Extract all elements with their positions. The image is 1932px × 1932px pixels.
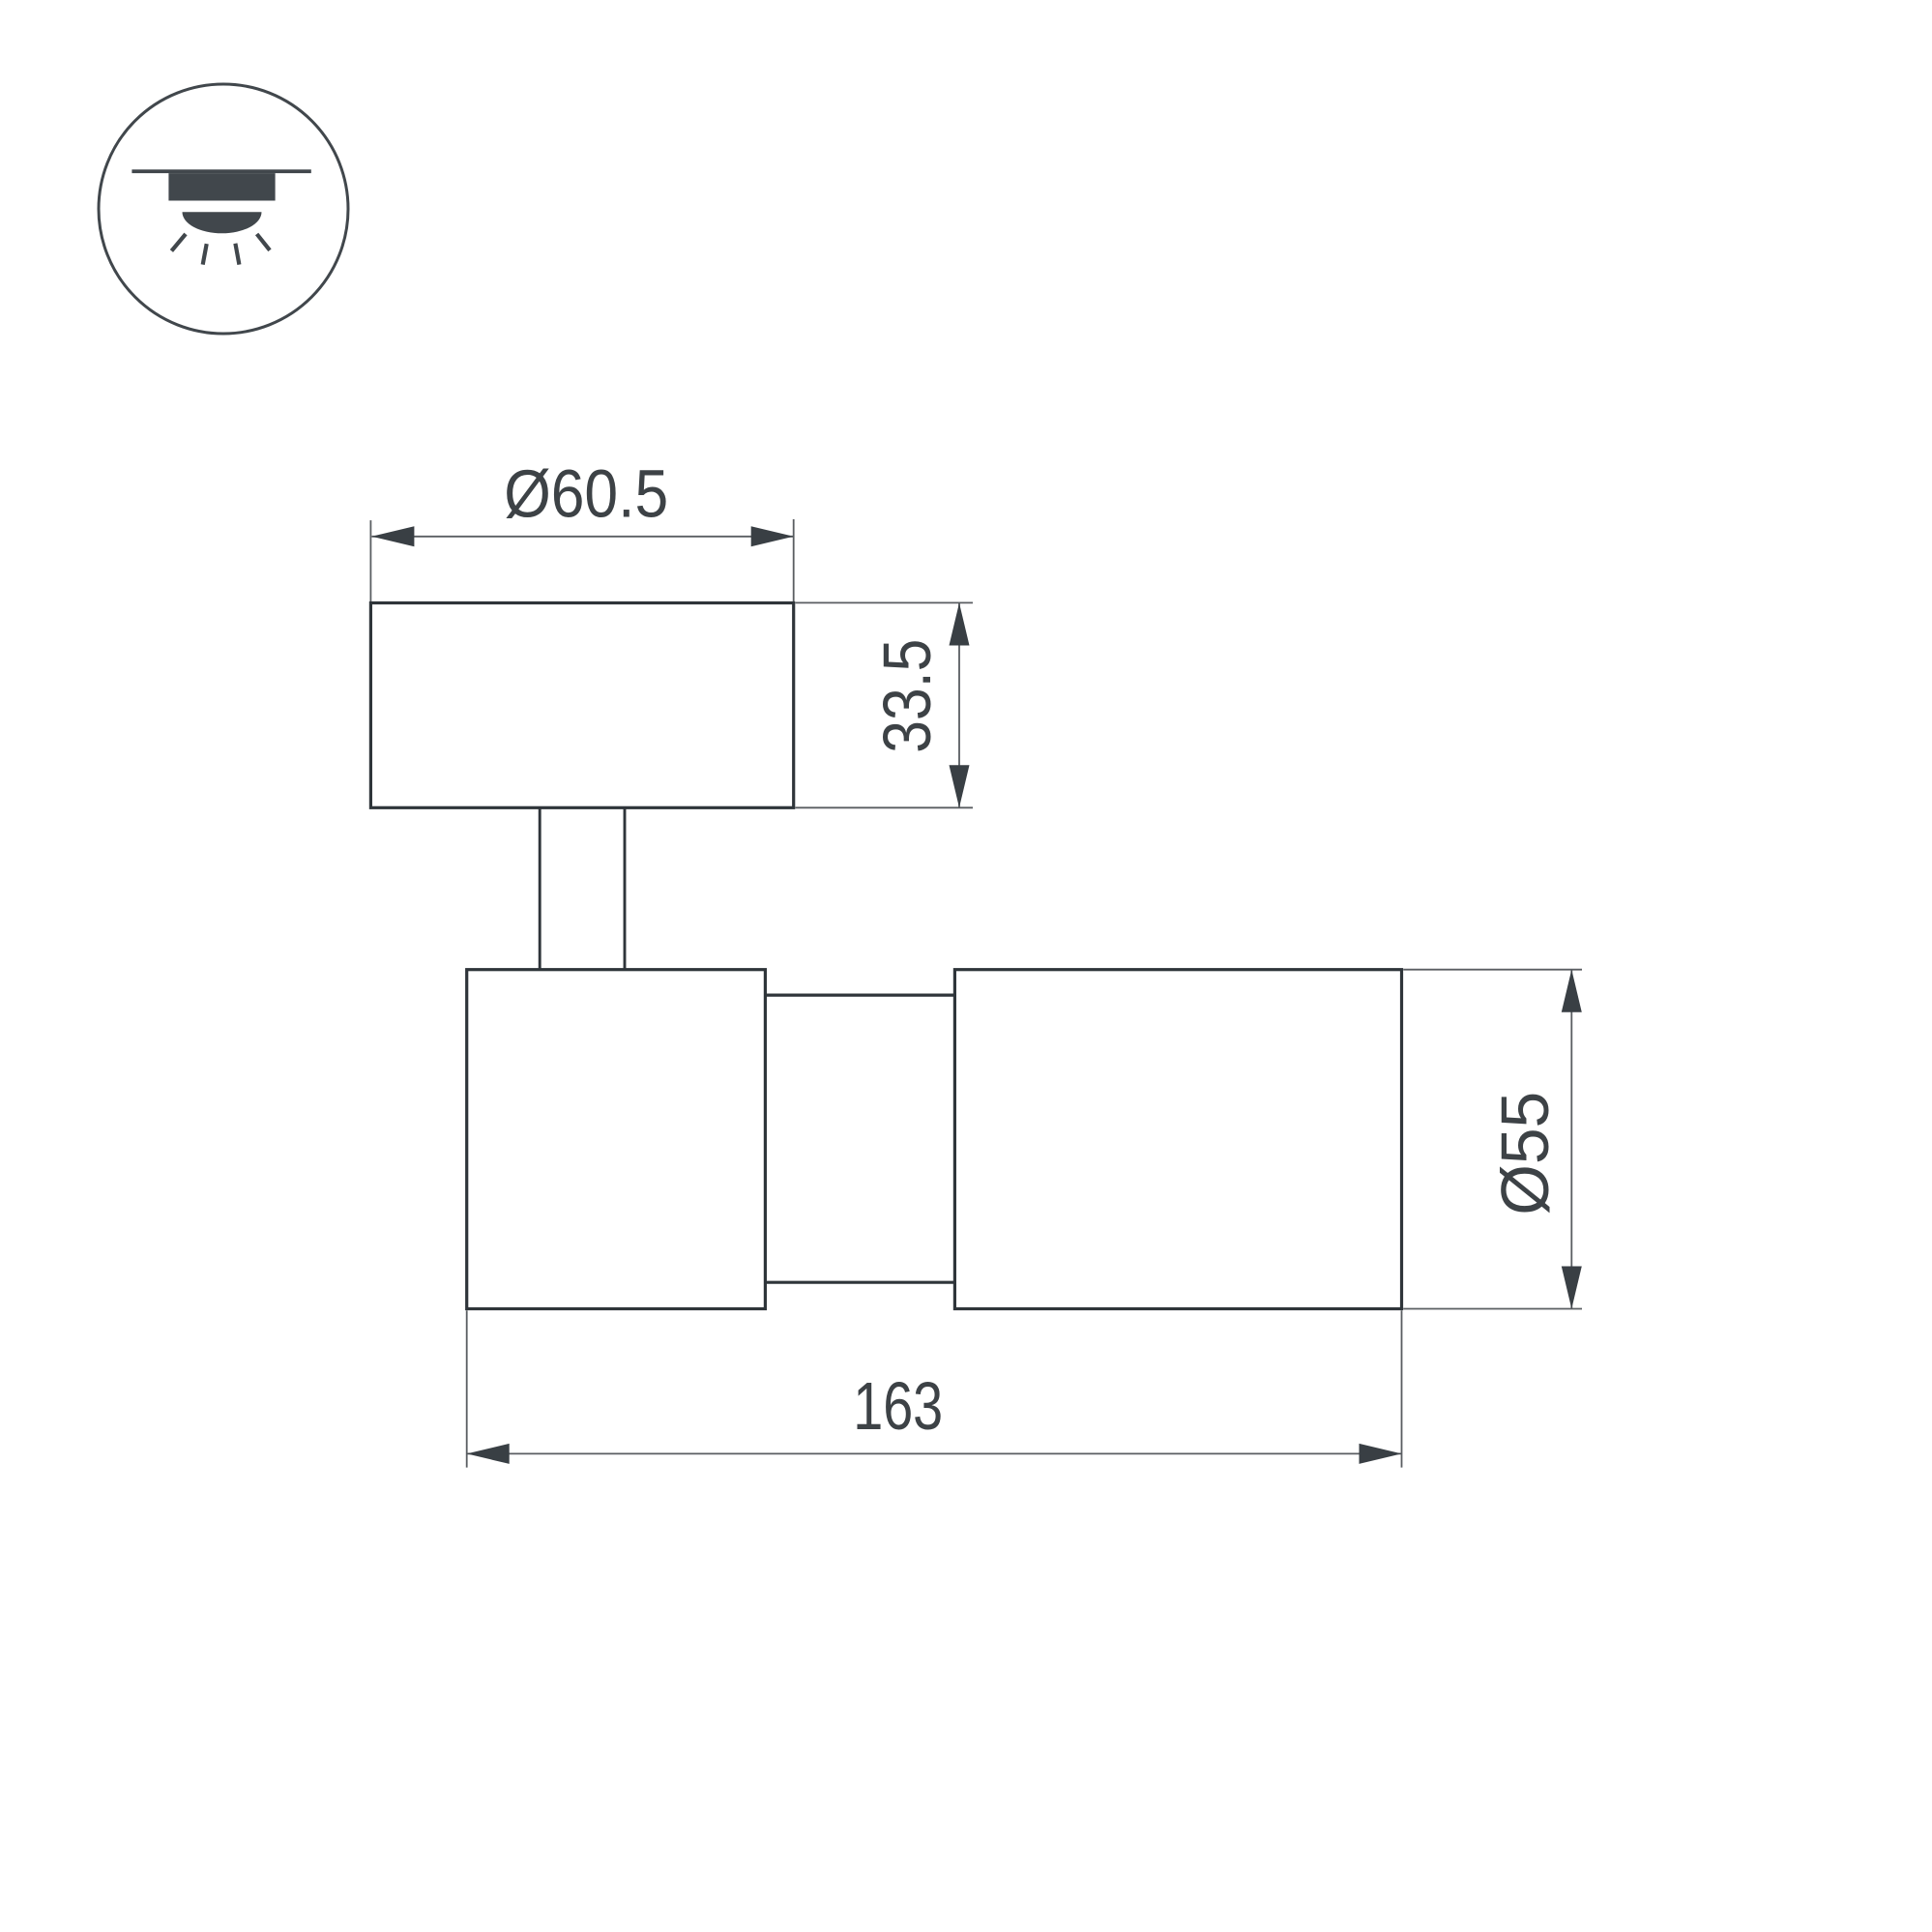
svg-text:Ø60.5: Ø60.5 xyxy=(504,456,668,532)
svg-text:33.5: 33.5 xyxy=(869,639,945,753)
svg-text:163: 163 xyxy=(853,1368,943,1444)
svg-text:Ø55: Ø55 xyxy=(1487,1092,1563,1215)
